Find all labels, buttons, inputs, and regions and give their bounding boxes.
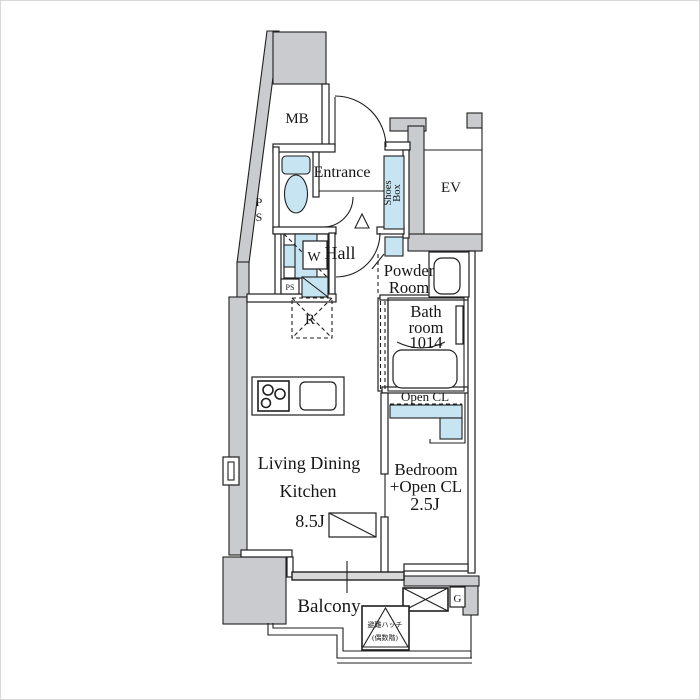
ldk-bath-wall (378, 298, 388, 391)
floorplan-svg: MB Entrance Hall Shoes Box EV P S Powder… (1, 1, 700, 700)
ps-small-label: PS (286, 283, 295, 292)
bathroom-label-3: 1014 (410, 333, 443, 352)
hatch-label-1: 避難ハッチ (368, 620, 403, 629)
shoes-box-label-2: Box (392, 184, 403, 202)
entrance-label: Entrance (314, 164, 371, 181)
toilet-bottom-wall (273, 227, 336, 234)
ldk-bottom-left-wall (241, 550, 292, 557)
powder-room-label-2: Room (389, 278, 430, 297)
open-cl-label: Open CL (401, 389, 449, 404)
toilet-tank (282, 156, 310, 174)
floorplan-image: MB Entrance Hall Shoes Box EV P S Powder… (0, 0, 700, 700)
vanity-basin (434, 258, 460, 294)
washer-left-wall (275, 234, 281, 299)
opencl-bar-h (390, 405, 462, 418)
bedroom-size-label: 2.5J (410, 494, 440, 514)
top-block-wall (273, 32, 326, 84)
balcony-right-wall (404, 576, 479, 586)
kitchen-sink (300, 382, 336, 410)
unit-right-wall (468, 251, 475, 573)
gas-meter-label: G (454, 593, 462, 605)
entrance-step-mark (355, 214, 369, 228)
ldk-label-2: Kitchen (280, 481, 337, 501)
ldk-size-label: 8.5J (295, 511, 325, 531)
ev-label: EV (441, 180, 461, 196)
toilet-door-arc (323, 197, 353, 227)
balcony-sliding-window (292, 572, 404, 580)
bath-counter (456, 306, 463, 344)
ldk-label-1: Living Dining (258, 453, 361, 473)
toilet-bowl (285, 175, 308, 213)
ev-bottom-wall (408, 234, 482, 251)
hatch-label-2: (偶数階) (372, 633, 398, 642)
entrance-door-arc (335, 96, 386, 147)
entrance-upper-wall (273, 144, 335, 152)
side-window-frame (223, 457, 239, 485)
ldk-left-wall (229, 297, 247, 555)
opencl-bar-v (440, 418, 462, 439)
bedroom-partition-upper (381, 393, 388, 474)
top-right-notch-wall (467, 113, 482, 128)
washer-label: W (307, 250, 321, 265)
bedroom-bottom-wall (404, 564, 468, 571)
toilet-left-wall (273, 147, 279, 233)
fridge-label: R (305, 312, 315, 328)
balcony-label: Balcony (297, 596, 361, 617)
mb-right-wall (322, 84, 329, 147)
hall-label: Hall (325, 243, 356, 263)
entrance-right-wall (385, 142, 410, 150)
balcony-left-block (223, 557, 286, 624)
powder-ps-square (385, 237, 403, 256)
ps-label-s: S (256, 210, 263, 224)
bathtub (393, 350, 457, 388)
ps-label-p: P (256, 195, 263, 209)
mb-label: MB (285, 111, 308, 127)
bedroom-partition-lower (381, 517, 388, 573)
